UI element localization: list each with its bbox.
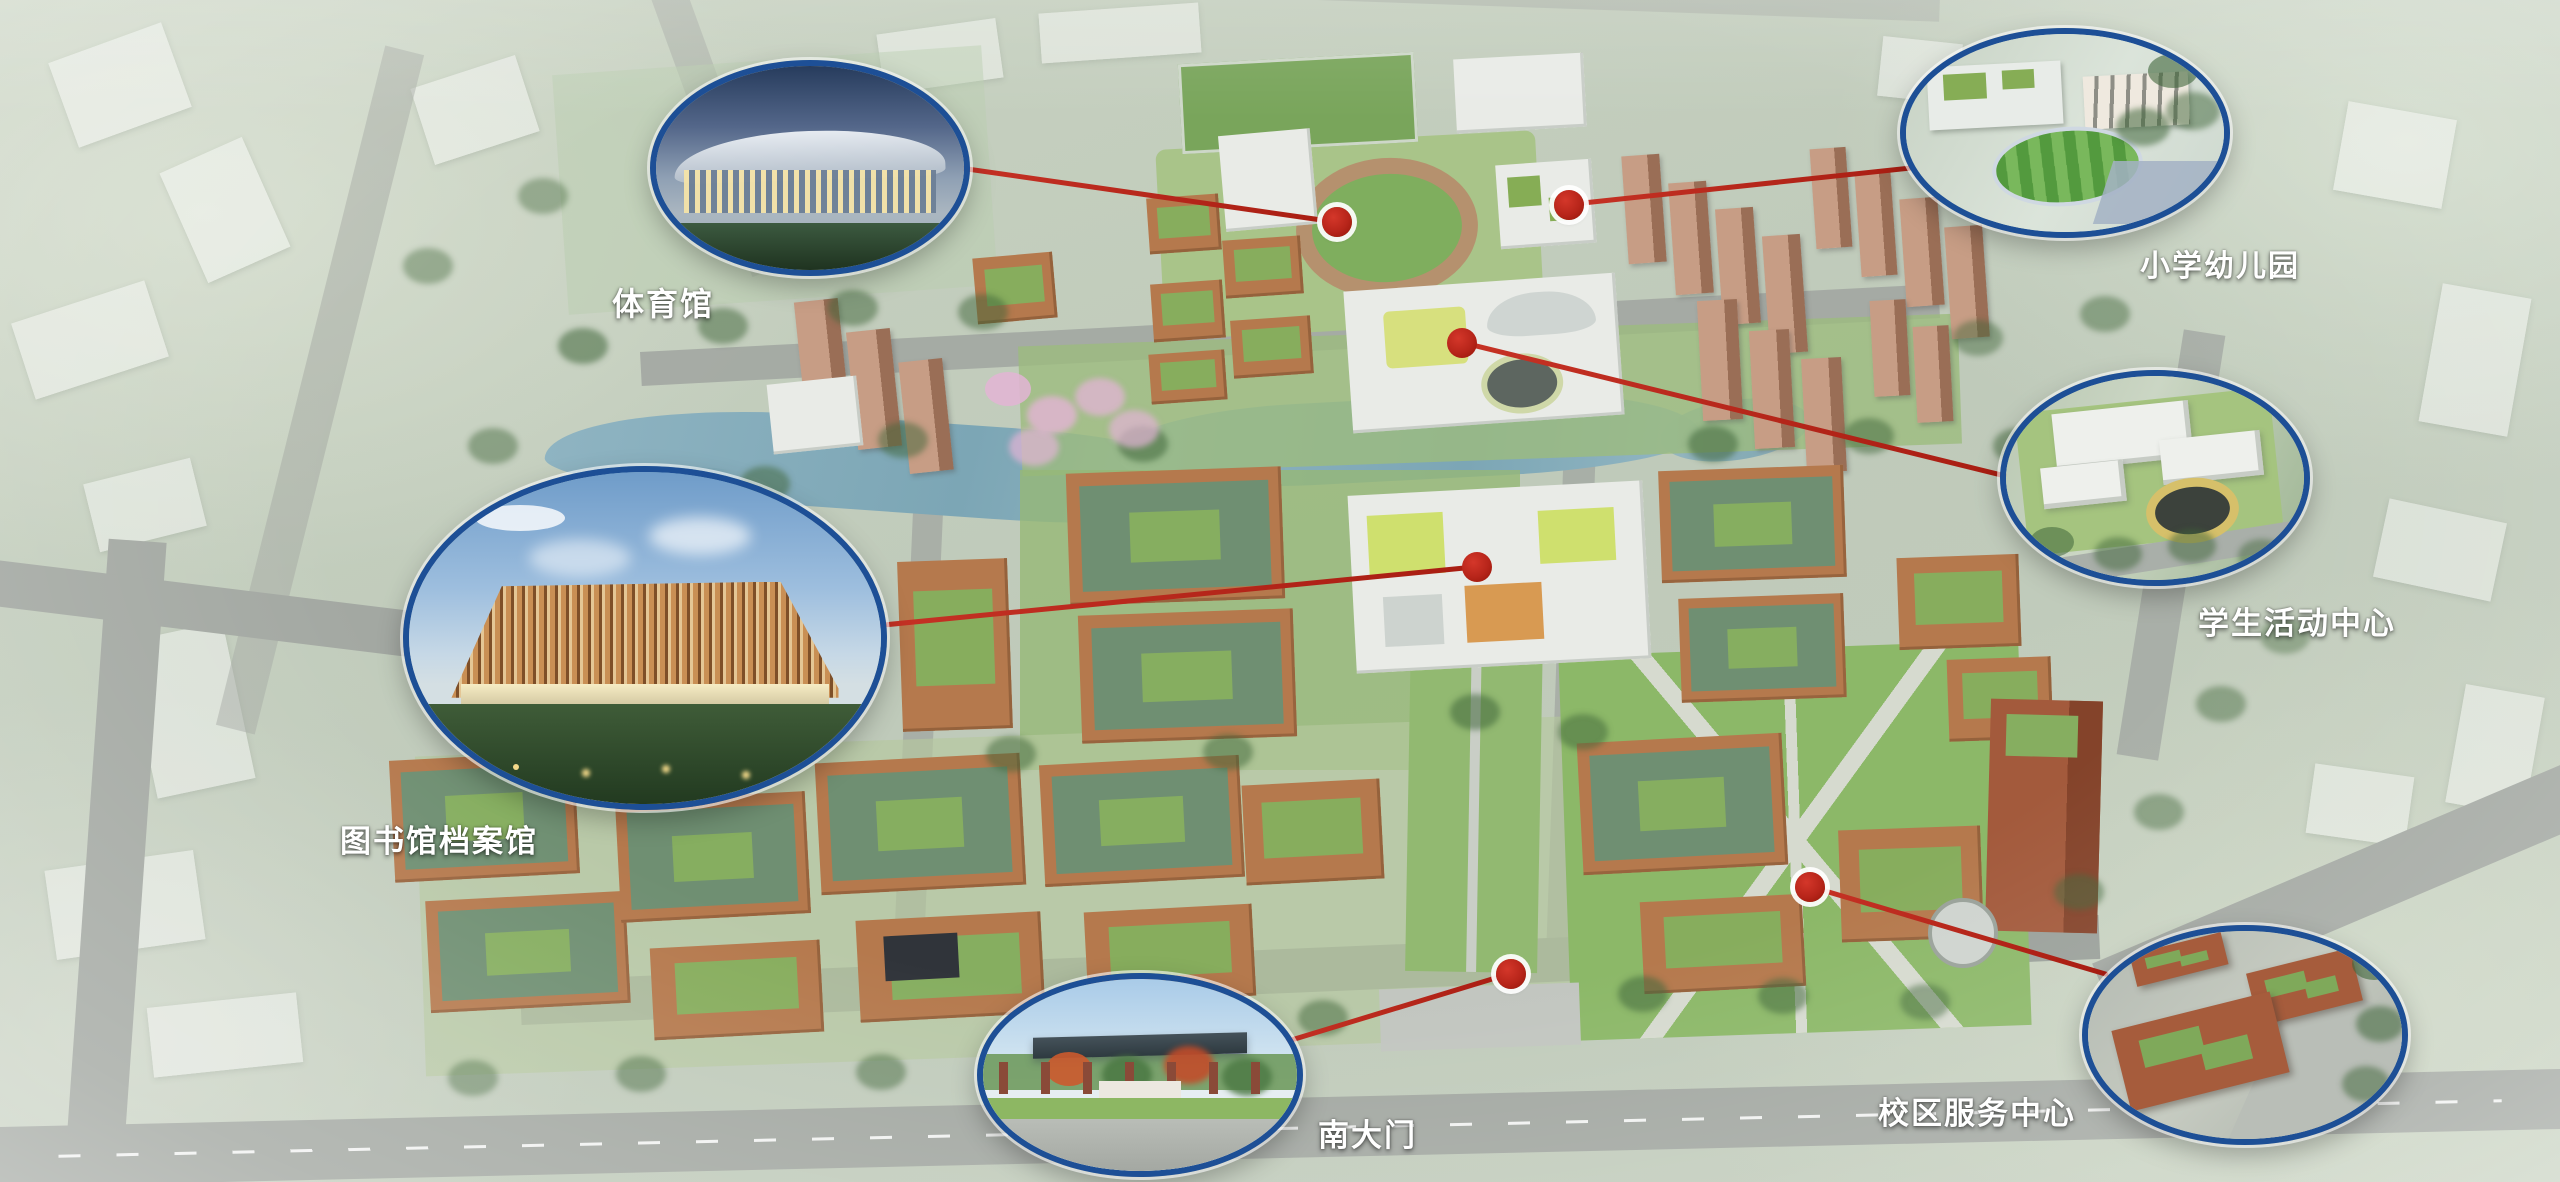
map-marker-library — [1462, 552, 1492, 582]
callout-bubble-library — [403, 466, 887, 810]
primary-school-render — [1906, 34, 2224, 232]
map-marker-primary-school — [1554, 190, 1584, 220]
label-gymnasium: 体育馆 — [612, 279, 714, 325]
callout-bubble-campus-service-center — [2082, 925, 2408, 1145]
label-south-gate: 南大门 — [1318, 1110, 1417, 1155]
callout-bubble-student-activity-center — [2000, 370, 2310, 586]
library-render — [409, 472, 881, 804]
label-student-activity-center: 学生活动中心 — [2198, 598, 2396, 643]
callout-bubble-gymnasium — [650, 60, 970, 276]
brick-tower — [1985, 699, 2103, 934]
label-campus-service-center: 校区服务中心 — [1878, 1088, 2076, 1133]
central-axis-lawn — [1405, 635, 1543, 973]
cherry-blossom-trees — [985, 372, 1031, 406]
map-marker-student-activity-center — [1447, 328, 1477, 358]
map-marker-south-gate — [1496, 959, 1526, 989]
south-gate-render — [983, 979, 1297, 1171]
callout-bubble-south-gate — [977, 973, 1303, 1177]
gymnasium-render — [656, 66, 964, 270]
student-activity-center-render — [2006, 376, 2304, 580]
label-primary-school: 小学幼儿园 — [2140, 241, 2300, 285]
label-library-archives: 图书馆档案馆 — [340, 816, 538, 861]
campus-service-center-render — [2088, 931, 2402, 1139]
callout-bubble-primary-school — [1900, 28, 2230, 238]
map-marker-gymnasium — [1322, 207, 1352, 237]
map-marker-campus-service-center — [1795, 872, 1825, 902]
campus-aerial-map: 体育馆 小学幼儿园 学生活动中心 图书馆档案馆 南大门 校区服务中心 — [0, 0, 2560, 1182]
north-white-building — [1343, 273, 1624, 434]
